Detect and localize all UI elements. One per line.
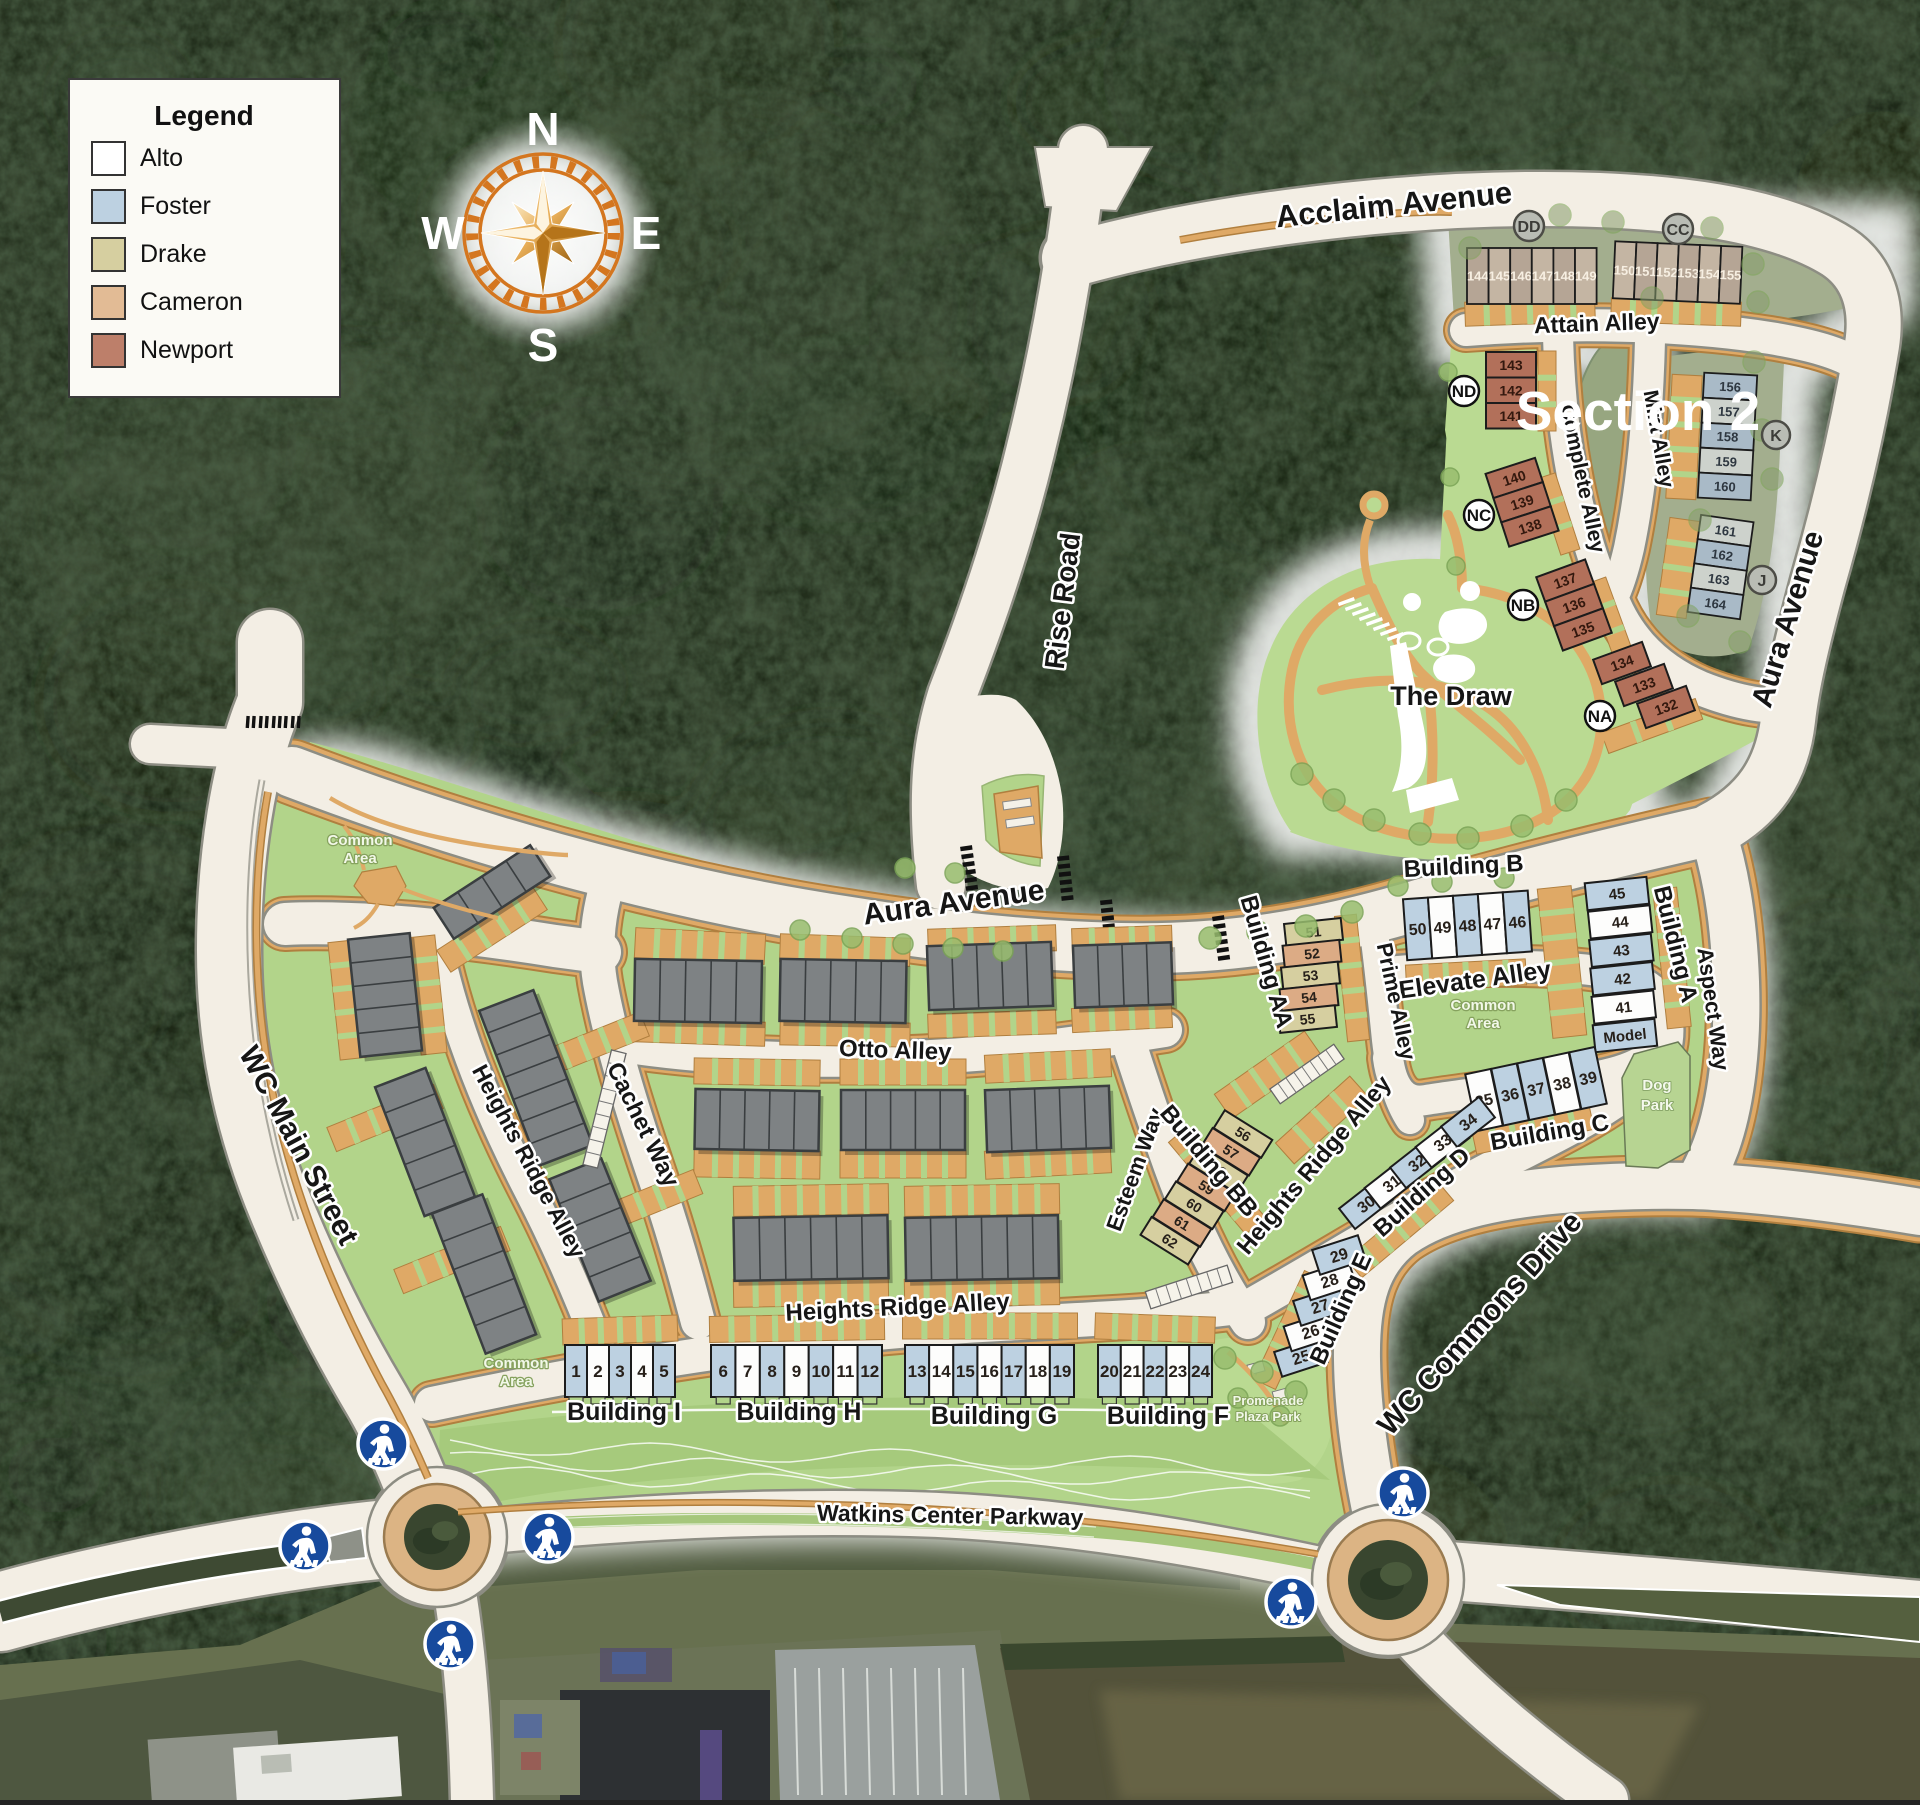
- svg-text:147: 147: [1532, 269, 1554, 284]
- svg-text:E: E: [631, 207, 662, 259]
- svg-text:145: 145: [1489, 269, 1511, 284]
- svg-text:36: 36: [1500, 1086, 1521, 1106]
- svg-text:161: 161: [1714, 522, 1738, 540]
- svg-text:37: 37: [1526, 1080, 1547, 1100]
- svg-text:NA: NA: [1588, 707, 1613, 726]
- svg-text:Newport: Newport: [140, 336, 233, 364]
- svg-text:12: 12: [860, 1362, 879, 1381]
- svg-text:2: 2: [593, 1362, 602, 1381]
- svg-text:160: 160: [1714, 479, 1736, 495]
- svg-text:8: 8: [767, 1362, 776, 1381]
- svg-text:Common: Common: [328, 832, 393, 849]
- svg-text:Watkins Center Parkway: Watkins Center Parkway: [817, 1500, 1084, 1531]
- svg-text:5: 5: [659, 1362, 668, 1381]
- svg-text:151: 151: [1635, 263, 1657, 279]
- svg-text:24: 24: [1191, 1362, 1210, 1381]
- svg-text:15: 15: [956, 1362, 975, 1381]
- svg-text:Common: Common: [1451, 997, 1516, 1014]
- svg-text:Area: Area: [499, 1373, 533, 1390]
- svg-text:The Draw: The Draw: [1390, 681, 1513, 711]
- svg-text:22: 22: [1146, 1362, 1165, 1381]
- svg-text:154: 154: [1698, 266, 1721, 282]
- svg-text:153: 153: [1677, 265, 1699, 281]
- svg-text:50: 50: [1408, 921, 1427, 939]
- svg-text:1: 1: [571, 1362, 580, 1381]
- svg-text:46: 46: [1508, 914, 1527, 932]
- svg-text:Area: Area: [343, 850, 377, 867]
- svg-text:N: N: [526, 103, 559, 155]
- svg-text:Building F: Building F: [1107, 1402, 1229, 1430]
- svg-text:NC: NC: [1467, 506, 1492, 525]
- svg-text:4: 4: [637, 1362, 647, 1381]
- svg-text:Alto: Alto: [140, 144, 183, 172]
- svg-text:9: 9: [792, 1362, 801, 1381]
- svg-text:23: 23: [1168, 1362, 1187, 1381]
- svg-text:146: 146: [1510, 269, 1532, 284]
- svg-text:Area: Area: [1466, 1015, 1500, 1032]
- svg-text:143: 143: [1499, 357, 1523, 373]
- svg-text:44: 44: [1611, 913, 1630, 932]
- svg-text:7: 7: [743, 1362, 752, 1381]
- svg-text:21: 21: [1123, 1362, 1142, 1381]
- svg-text:Legend: Legend: [154, 100, 254, 131]
- svg-text:149: 149: [1575, 269, 1597, 284]
- svg-text:ND: ND: [1452, 382, 1477, 401]
- svg-text:164: 164: [1704, 595, 1728, 613]
- svg-text:DD: DD: [1517, 219, 1540, 236]
- svg-text:48: 48: [1458, 918, 1477, 936]
- svg-text:Common: Common: [484, 1355, 549, 1372]
- svg-text:Plaza Park: Plaza Park: [1235, 1409, 1301, 1424]
- svg-text:45: 45: [1608, 885, 1626, 904]
- svg-text:6: 6: [718, 1362, 727, 1381]
- svg-text:18: 18: [1028, 1362, 1047, 1381]
- svg-text:Promenade: Promenade: [1233, 1393, 1304, 1408]
- svg-text:CC: CC: [1666, 222, 1690, 239]
- svg-text:Drake: Drake: [140, 240, 207, 268]
- svg-text:10: 10: [811, 1362, 830, 1381]
- svg-text:Building H: Building H: [737, 1398, 862, 1426]
- svg-text:K: K: [1770, 428, 1782, 445]
- svg-text:155: 155: [1719, 267, 1741, 283]
- svg-text:38: 38: [1552, 1075, 1573, 1095]
- svg-text:J: J: [1758, 573, 1767, 590]
- svg-text:162: 162: [1710, 546, 1734, 564]
- svg-text:159: 159: [1715, 454, 1737, 470]
- svg-text:17: 17: [1004, 1362, 1023, 1381]
- svg-text:152: 152: [1656, 264, 1678, 280]
- svg-text:Building G: Building G: [931, 1402, 1057, 1430]
- svg-text:Cameron: Cameron: [140, 288, 243, 316]
- svg-text:49: 49: [1433, 919, 1452, 937]
- svg-text:Dog: Dog: [1642, 1077, 1671, 1094]
- svg-text:42: 42: [1613, 970, 1631, 989]
- svg-text:Foster: Foster: [140, 192, 211, 220]
- svg-text:150: 150: [1613, 262, 1635, 278]
- svg-text:39: 39: [1578, 1069, 1599, 1089]
- svg-text:Section 2: Section 2: [1516, 380, 1761, 442]
- svg-text:43: 43: [1612, 942, 1630, 961]
- svg-text:Building I: Building I: [567, 1398, 681, 1426]
- svg-text:53: 53: [1302, 967, 1319, 985]
- svg-text:55: 55: [1299, 1010, 1316, 1028]
- svg-text:3: 3: [615, 1362, 624, 1381]
- svg-text:Otto Alley: Otto Alley: [839, 1035, 953, 1066]
- svg-text:NB: NB: [1511, 596, 1536, 615]
- svg-text:W: W: [421, 207, 465, 259]
- svg-text:54: 54: [1300, 988, 1317, 1006]
- svg-text:13: 13: [908, 1362, 927, 1381]
- svg-text:14: 14: [932, 1362, 951, 1381]
- svg-text:19: 19: [1052, 1362, 1071, 1381]
- svg-text:16: 16: [980, 1362, 999, 1381]
- svg-text:20: 20: [1100, 1362, 1119, 1381]
- svg-text:Park: Park: [1641, 1097, 1674, 1114]
- svg-text:163: 163: [1707, 570, 1731, 588]
- svg-text:41: 41: [1615, 999, 1633, 1018]
- svg-text:47: 47: [1483, 916, 1502, 934]
- svg-text:11: 11: [836, 1362, 854, 1381]
- svg-text:52: 52: [1303, 945, 1320, 963]
- svg-text:S: S: [528, 319, 559, 371]
- svg-text:144: 144: [1467, 269, 1489, 284]
- svg-text:Attain Alley: Attain Alley: [1533, 308, 1660, 338]
- svg-text:148: 148: [1553, 269, 1575, 284]
